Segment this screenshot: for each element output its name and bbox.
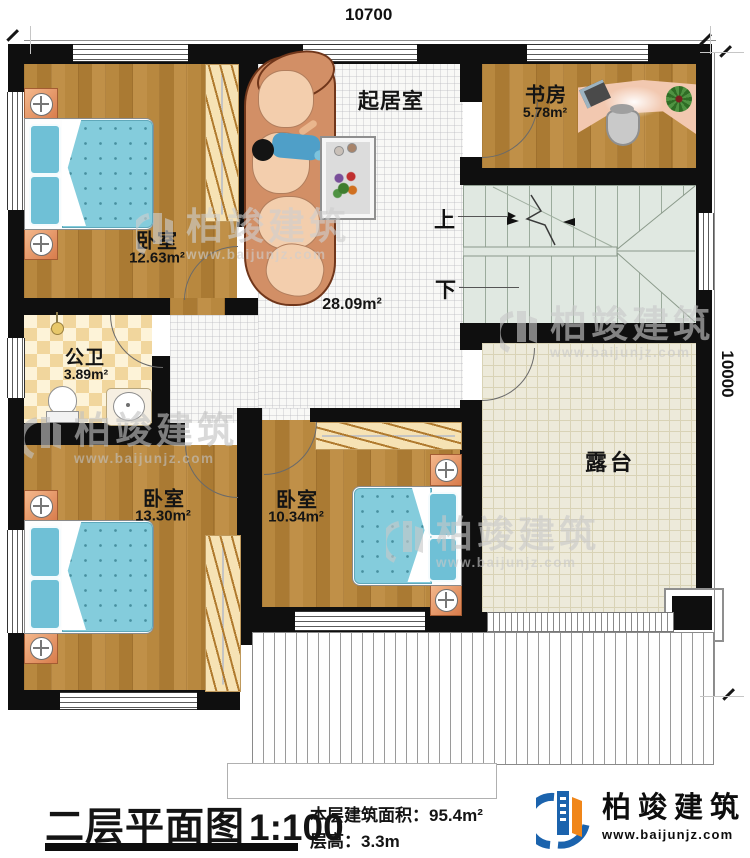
wall-bedroombm-top <box>310 408 460 422</box>
chair-back <box>610 104 634 114</box>
stats-height-value: 3.3m <box>361 832 400 851</box>
lamp-icon <box>30 233 53 256</box>
window-top-study <box>527 44 648 62</box>
lamp-icon <box>435 589 458 612</box>
floor-corridor <box>170 315 258 423</box>
lamp-icon <box>30 93 53 116</box>
label-living: 起居室 <box>358 85 424 115</box>
dimension-top: 10700 <box>345 5 392 25</box>
dimension-right-line <box>714 52 715 697</box>
window-top-bedroomtl <box>73 44 188 62</box>
area-bathroom: 3.89m² <box>64 366 108 382</box>
area-bedroom-bottom-left: 13.30m² <box>135 508 191 525</box>
wall-terrace-left <box>460 400 482 613</box>
window-bottom-bedroombl <box>60 692 197 710</box>
title-underline <box>45 843 298 851</box>
extension-line <box>700 52 744 53</box>
stats-area-value: 95.4m² <box>429 806 483 825</box>
floorplan-page: 上 下 卧室 12.63m² 起居室 28.09m² 书房 5.78m² 公卫 … <box>0 0 750 858</box>
table-flowers <box>330 168 360 202</box>
stair-detail <box>463 185 696 323</box>
wall-corridor-bottom <box>8 423 185 445</box>
floor-door-patch-top-left <box>170 298 225 315</box>
lamp-icon <box>435 459 458 482</box>
company-name: 柏竣建筑 <box>602 794 746 823</box>
stair-up-label: 上 <box>434 204 455 234</box>
pillow <box>428 537 458 582</box>
extension-line <box>710 26 711 54</box>
dimension-tick <box>6 29 18 41</box>
wardrobe-bottom-left <box>205 535 241 692</box>
window-bottom-bedroombm <box>295 611 425 631</box>
window-right-stair <box>698 213 715 290</box>
plant-icon <box>666 86 692 112</box>
extension-line <box>700 696 744 697</box>
sofa-cushion <box>258 196 320 250</box>
nightstand <box>24 490 58 522</box>
window-left-bedroomtl <box>7 92 25 210</box>
label-terrace: 露台 <box>585 445 635 477</box>
dimension-top-line <box>24 40 716 41</box>
pillar <box>672 596 712 630</box>
stats-area-label: 本层建筑面积： <box>310 806 429 825</box>
table-cup <box>347 143 357 153</box>
pendant-light <box>51 322 64 335</box>
nightstand <box>430 584 462 616</box>
pillow <box>29 578 61 630</box>
wall-terrace-left-stub <box>460 343 482 350</box>
balcony-railing-hatch <box>252 632 714 765</box>
wall-bathroom-top <box>8 298 170 315</box>
pillow <box>29 175 61 226</box>
wall-stair-top <box>460 168 712 185</box>
lamp-icon <box>30 495 53 518</box>
nightstand <box>24 228 58 260</box>
area-living: 28.09m² <box>322 296 382 314</box>
wall-study-left-b <box>460 157 482 168</box>
stair-down-leader <box>459 287 519 288</box>
nightstand <box>430 454 462 486</box>
stats-height-row: 层高：3.3m <box>310 829 483 855</box>
area-bedroom-top-left: 12.63m² <box>129 250 185 267</box>
pillow <box>29 124 61 175</box>
area-bedroom-bottom-middle: 10.34m² <box>268 509 324 526</box>
wall-stub-living <box>225 298 258 315</box>
wall-study-left-a <box>460 64 482 102</box>
stats-area-row: 本层建筑面积：95.4m² <box>310 803 483 829</box>
pillow <box>428 492 458 537</box>
pillow <box>29 526 61 578</box>
terrace-bottom-rail <box>487 612 674 632</box>
company-logo: 柏竣建筑 www.baijunjz.com <box>536 785 746 851</box>
wall-stair-bottom <box>460 323 712 343</box>
extension-line <box>30 26 31 54</box>
company-logo-icon <box>536 785 592 851</box>
nightstand <box>24 88 58 120</box>
floor-stats: 本层建筑面积：95.4m² 层高：3.3m <box>310 803 483 854</box>
wardrobe-bottom-middle <box>315 422 462 450</box>
lamp-icon <box>30 637 53 660</box>
sink-drain <box>126 403 130 407</box>
nightstand <box>24 632 58 664</box>
person-head <box>252 139 274 161</box>
company-url: www.baijunjz.com <box>602 827 746 842</box>
toilet-tank <box>46 411 79 423</box>
table-cup <box>334 146 344 156</box>
sofa-cushion <box>258 70 314 128</box>
window-left-bathroom <box>7 338 25 398</box>
wardrobe-top-left <box>205 64 239 222</box>
desk-chair <box>606 110 640 146</box>
window-left-bedroombl <box>7 530 25 633</box>
stair-down-label: 下 <box>435 274 456 304</box>
stair-up-leader <box>458 216 510 217</box>
stats-height-label: 层高： <box>310 832 361 851</box>
dimension-tick <box>722 688 734 700</box>
area-study: 5.78m² <box>523 104 567 120</box>
dimension-right: 10000 <box>717 344 737 404</box>
wall-terrace-stub-bl <box>462 612 488 632</box>
stair-up-arrow-icon <box>508 212 516 220</box>
lower-roof-outline <box>227 763 497 799</box>
